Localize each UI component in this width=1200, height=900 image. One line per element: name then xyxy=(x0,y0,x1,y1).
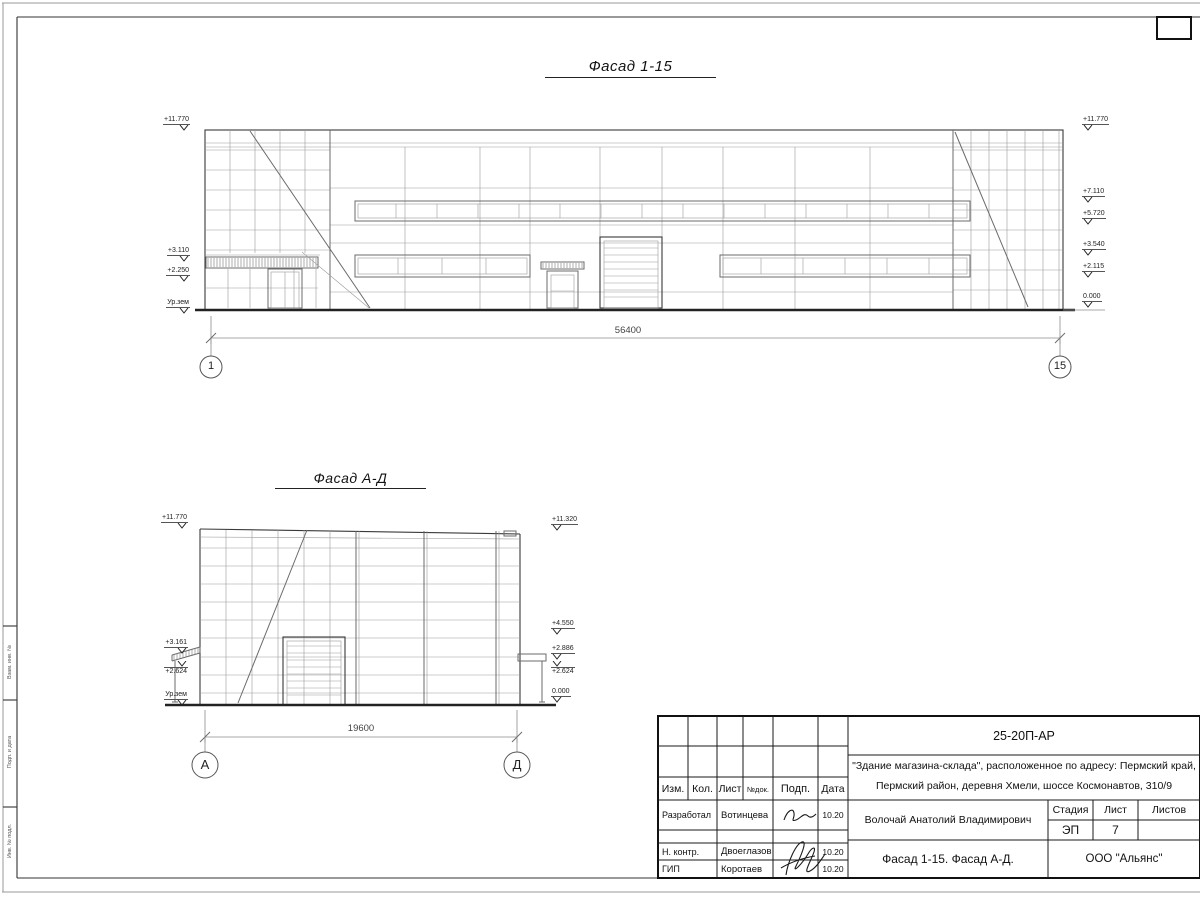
elevation-value: +7.110 xyxy=(1082,188,1105,197)
elevation-mark: +7.110 xyxy=(1082,188,1132,203)
elevation-value: Ур.зем xyxy=(166,299,190,308)
elevation-flag-icon xyxy=(179,125,189,131)
role-cell: Разработал xyxy=(659,805,719,825)
elevation-value: +2.624 xyxy=(551,667,575,676)
name-cell: Двоеглазов xyxy=(718,844,775,859)
elevation-mark: +11.770 xyxy=(138,514,188,529)
facade1-title: Фасад 1-15 xyxy=(545,58,716,78)
elevation-flag-icon xyxy=(1083,219,1093,225)
name-cell: Коротаев xyxy=(718,861,775,877)
elevation-mark: +2.624 xyxy=(138,661,188,676)
elevation-value: +11.770 xyxy=(161,514,188,523)
drawing-title-cell: Фасад 1-15. Фасад А-Д. xyxy=(850,840,1046,878)
elevation-mark: +11.770 xyxy=(1082,116,1132,131)
dimension-label: 56400 xyxy=(598,325,658,336)
sheet-number: 7 xyxy=(1093,820,1138,840)
company-name: ООО "Альянс" xyxy=(1048,840,1200,878)
elevation-flag-icon xyxy=(552,697,562,703)
elevation-value: 0.000 xyxy=(1082,293,1102,302)
elevation-value: +2.250 xyxy=(166,267,190,276)
elevation-mark: +2.250 xyxy=(140,267,190,282)
elevation-value: +11.770 xyxy=(1082,116,1109,125)
elevation-mark: +11.320 xyxy=(551,516,601,531)
elevation-value: +2.624 xyxy=(164,667,188,676)
elevation-mark: +5.720 xyxy=(1082,210,1132,225)
date-cell: 10.20 xyxy=(818,861,848,877)
elevation-flag-icon xyxy=(552,629,562,635)
role-cell: ГИП xyxy=(659,861,719,877)
drawing-sheet: Фасад 1-15 +11.770 +3.110 +2.250 Ур.зем … xyxy=(0,0,1200,900)
role-cell: Н. контр. xyxy=(659,844,719,859)
elevation-value: +11.320 xyxy=(551,516,578,525)
side-stamp-label: Инв. № подл. xyxy=(7,806,13,876)
elevation-flag-icon xyxy=(177,523,187,529)
elevation-flag-icon xyxy=(552,525,562,531)
sheet-label: Лист xyxy=(1093,801,1138,819)
project-address-line2: Пермский район, деревня Хмели, шоссе Кос… xyxy=(850,776,1198,796)
elevation-value: +5.720 xyxy=(1082,210,1106,219)
elevation-flag-icon xyxy=(179,308,189,314)
elevation-mark: +3.540 xyxy=(1082,241,1132,256)
elevation-flag-icon xyxy=(179,256,189,262)
stage-label: Стадия xyxy=(1048,801,1093,819)
sheets-label: Листов xyxy=(1138,801,1200,819)
col-header-podp: Подп. xyxy=(773,779,818,799)
elevation-mark: 0.000 xyxy=(551,688,601,703)
elevation-flag-icon xyxy=(177,648,187,654)
elevation-mark: 0.000 xyxy=(1082,293,1132,308)
elevation-value: +3.161 xyxy=(164,639,188,648)
elevation-flag-icon xyxy=(552,654,562,660)
elevation-mark: +2.624 xyxy=(551,661,601,676)
axis-bubble-label: А xyxy=(192,757,218,772)
elevation-flag-icon xyxy=(1083,197,1093,203)
col-header-kol: Кол. xyxy=(688,779,717,799)
axis-bubble-label: 1 xyxy=(200,360,222,372)
col-header-list: Лист xyxy=(717,779,743,799)
facade2-title: Фасад А-Д xyxy=(275,470,426,489)
elevation-value: +2.886 xyxy=(551,645,575,654)
elevation-mark: Ур.зем xyxy=(138,691,188,706)
elevation-mark: +2.886 xyxy=(551,645,601,660)
elevation-mark: +3.161 xyxy=(138,639,188,654)
col-header-ndok: №док. xyxy=(743,779,773,799)
elevation-mark: Ур.зем xyxy=(140,299,190,314)
dimension-label: 19600 xyxy=(331,723,391,734)
elevation-value: +3.110 xyxy=(167,247,190,256)
side-stamp-label: Взам. инв. № xyxy=(7,627,13,697)
doc-code: 25-20П-АР xyxy=(848,718,1200,753)
elevation-mark: +2.115 xyxy=(1082,263,1132,278)
col-header-data: Дата xyxy=(818,779,848,799)
elevation-value: +11.770 xyxy=(163,116,190,125)
elevation-value: +4.550 xyxy=(551,620,575,629)
elevation-flag-icon xyxy=(1083,125,1093,131)
axis-bubble-label: 15 xyxy=(1049,360,1071,372)
elevation-flag-icon xyxy=(1083,250,1093,256)
col-header-izm: Изм. xyxy=(658,779,688,799)
elevation-value: +2.115 xyxy=(1082,263,1105,272)
stage-value: ЭП xyxy=(1048,820,1093,840)
side-stamp-label: Подп. и дата xyxy=(7,717,13,787)
axis-bubble-label: Д xyxy=(504,757,530,772)
elevation-flag-icon xyxy=(177,700,187,706)
elevation-flag-icon xyxy=(179,276,189,282)
elevation-mark: +11.770 xyxy=(140,116,190,131)
date-cell: 10.20 xyxy=(818,805,848,825)
elevation-mark: +3.110 xyxy=(140,247,190,262)
name-cell: Вотинцева xyxy=(718,805,775,825)
elevation-value: +3.540 xyxy=(1082,241,1106,250)
project-address-line1: "Здание магазина-склада", расположенное … xyxy=(850,756,1198,776)
elevation-flag-icon xyxy=(1083,302,1093,308)
date-cell: 10.20 xyxy=(818,844,848,859)
elevation-flag-icon xyxy=(1083,272,1093,278)
elevation-mark: +4.550 xyxy=(551,620,601,635)
approver-name: Волочай Анатолий Владимирович xyxy=(850,802,1046,838)
elevation-value: 0.000 xyxy=(551,688,571,697)
elevation-value: Ур.зем xyxy=(164,691,188,700)
